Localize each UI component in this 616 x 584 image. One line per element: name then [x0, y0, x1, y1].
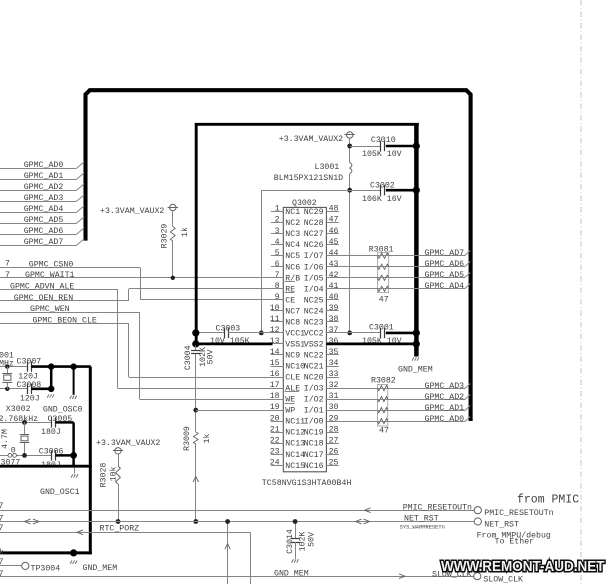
svg-text:47: 47 [379, 295, 389, 304]
svg-text:10: 10 [270, 304, 280, 313]
svg-text:26: 26 [329, 447, 339, 456]
svg-text:50V: 50V [308, 532, 317, 547]
svg-text:NC23: NC23 [304, 318, 324, 327]
svg-text:TC58NVG1S3HTA00B4H: TC58NVG1S3HTA00B4H [262, 479, 352, 488]
svg-text:R3081: R3081 [369, 245, 394, 254]
svg-text:21: 21 [270, 425, 280, 434]
svg-text:GPMC_AD4: GPMC_AD4 [24, 205, 64, 214]
svg-text:NC27: NC27 [304, 230, 324, 239]
svg-text:+3.3VAM_VAUX2: +3.3VAM_VAUX2 [279, 135, 343, 144]
svg-text:GPMC_AD4: GPMC_AD4 [425, 282, 465, 291]
svg-text:1k: 1k [202, 434, 212, 444]
svg-text:GPMC_AD1: GPMC_AD1 [24, 172, 64, 181]
svg-text:6: 6 [275, 260, 280, 269]
svg-text:C3014: C3014 [286, 529, 295, 554]
svg-text:GPMC_AD7: GPMC_AD7 [24, 238, 64, 247]
svg-text:GPMC_AD0: GPMC_AD0 [24, 161, 64, 170]
svg-text:NC26: NC26 [304, 241, 324, 250]
svg-text:GPMC_AD6: GPMC_AD6 [24, 227, 64, 236]
svg-text:GND_MEM: GND_MEM [274, 569, 309, 578]
svg-text:NC29: NC29 [304, 208, 324, 217]
svg-text:C3002: C3002 [370, 182, 395, 191]
svg-text:NC3: NC3 [285, 230, 300, 239]
svg-text:NC1: NC1 [285, 208, 300, 217]
svg-text:C3001: C3001 [369, 323, 394, 332]
svg-text:1: 1 [275, 205, 280, 214]
svg-text:To Ether: To Ether [495, 537, 535, 547]
svg-text:NC14: NC14 [285, 451, 305, 460]
svg-text:NET_RST: NET_RST [484, 521, 519, 530]
svg-text:C3006: C3006 [39, 448, 64, 457]
svg-text:2: 2 [275, 216, 280, 225]
svg-text:NC10: NC10 [285, 363, 305, 372]
svg-text:I/O7: I/O7 [304, 251, 324, 261]
svg-text:7: 7 [0, 502, 4, 511]
svg-text:180J: 180J [41, 428, 61, 437]
svg-text:+3.3VAM_VAUX2: +3.3VAM_VAUX2 [96, 439, 160, 448]
svg-text:CLE: CLE [285, 374, 300, 383]
svg-text:50V: 50V [206, 350, 215, 365]
svg-text:18: 18 [270, 392, 280, 401]
svg-text:NC6: NC6 [285, 263, 300, 272]
svg-text:NC7: NC7 [285, 307, 300, 316]
svg-text:102K: 102K [298, 532, 307, 552]
svg-text:7: 7 [5, 271, 10, 280]
svg-text:GND_OSC0: GND_OSC0 [43, 405, 83, 414]
svg-text:I/O3: I/O3 [304, 384, 324, 394]
svg-text:NC16: NC16 [304, 462, 324, 471]
svg-text:C3005: C3005 [48, 415, 73, 424]
svg-text:I/O5: I/O5 [304, 273, 324, 283]
svg-text:VCC2: VCC2 [304, 329, 324, 338]
svg-text:WWW.REMONT-AUD.NET: WWW.REMONT-AUD.NET [441, 559, 605, 575]
svg-text:GND_MEM: GND_MEM [83, 564, 118, 573]
svg-text:23: 23 [270, 447, 280, 456]
svg-text:105K 10V: 105K 10V [362, 150, 402, 159]
svg-text:NC20: NC20 [304, 374, 324, 383]
svg-text:VCC1: VCC1 [285, 329, 305, 338]
svg-text:34: 34 [329, 359, 339, 368]
svg-text:NC18: NC18 [304, 440, 324, 449]
svg-text:43: 43 [329, 260, 339, 269]
svg-text:X3002: X3002 [6, 405, 31, 414]
svg-text:R3082: R3082 [371, 376, 396, 385]
svg-text:GPMC_AD2: GPMC_AD2 [425, 393, 465, 402]
svg-text:NC28: NC28 [304, 219, 324, 228]
svg-text:10k: 10k [109, 467, 119, 482]
svg-text:TP3004: TP3004 [31, 564, 61, 573]
svg-text:NC2: NC2 [285, 219, 300, 228]
svg-text:46: 46 [329, 227, 339, 236]
svg-text:GPMC_AD5: GPMC_AD5 [24, 216, 64, 225]
svg-text:1k: 1k [180, 227, 190, 237]
svg-text:RTC_PORZ: RTC_PORZ [100, 524, 140, 533]
svg-text:GPMC_AD3: GPMC_AD3 [24, 194, 64, 203]
svg-text:47: 47 [329, 216, 339, 225]
svg-text:41: 41 [329, 282, 339, 291]
svg-text:NC24: NC24 [304, 307, 324, 316]
svg-text:NC5: NC5 [285, 252, 300, 261]
svg-text:120J: 120J [20, 395, 40, 404]
svg-text:48: 48 [329, 205, 339, 214]
svg-text:33: 33 [329, 370, 339, 379]
svg-text:22: 22 [270, 436, 280, 445]
svg-text:44: 44 [329, 249, 339, 258]
svg-text:CE: CE [285, 296, 295, 305]
svg-text:PMIC_RESETOUTn: PMIC_RESETOUTn [403, 503, 472, 512]
svg-text:GPMC_AD1: GPMC_AD1 [425, 404, 465, 413]
svg-text:NC21: NC21 [304, 363, 324, 372]
svg-text:GPMC_CSN0: GPMC_CSN0 [29, 261, 74, 270]
svg-text:PMIC_RESETOUTn: PMIC_RESETOUTn [484, 509, 553, 518]
svg-text:39: 39 [329, 304, 339, 313]
svg-text:C3003: C3003 [216, 325, 241, 334]
svg-text:GPMC_AD0: GPMC_AD0 [425, 415, 465, 424]
svg-text:NC19: NC19 [304, 429, 324, 438]
svg-text:4.7M: 4.7M [1, 429, 10, 449]
svg-text:106K 16V: 106K 16V [362, 195, 402, 204]
svg-text:5: 5 [275, 249, 280, 258]
svg-text:MHz: MHz [0, 359, 14, 368]
svg-text:GPMC_WAIT1: GPMC_WAIT1 [25, 271, 75, 280]
svg-text:Q3002: Q3002 [292, 199, 317, 208]
svg-text:7: 7 [0, 514, 4, 523]
svg-text:47: 47 [379, 426, 389, 435]
svg-text:15: 15 [270, 359, 280, 368]
svg-text:16: 16 [270, 370, 280, 379]
svg-text:R3028: R3028 [100, 463, 109, 488]
svg-text:+3.3VAM_VAUX2: +3.3VAM_VAUX2 [100, 207, 164, 216]
svg-text:35: 35 [329, 348, 339, 357]
svg-text:11: 11 [270, 315, 280, 324]
svg-text:C3007: C3007 [17, 358, 42, 367]
svg-text:GPMC_WEN: GPMC_WEN [30, 305, 70, 314]
svg-text:SYS_WARMRESETn: SYS_WARMRESETn [400, 524, 445, 530]
svg-text:28: 28 [329, 425, 339, 434]
svg-text:I/O4: I/O4 [304, 284, 324, 294]
svg-text:NC11: NC11 [285, 418, 305, 427]
svg-text:7: 7 [0, 524, 4, 533]
svg-text:C3004: C3004 [184, 345, 193, 370]
svg-text:0: 0 [11, 447, 16, 456]
svg-text:NC9: NC9 [285, 351, 300, 360]
svg-text:17: 17 [270, 381, 280, 390]
svg-text:7: 7 [0, 558, 4, 567]
svg-text:C3010: C3010 [371, 136, 396, 145]
svg-text:37: 37 [329, 326, 339, 335]
svg-text:VSS1: VSS1 [285, 340, 305, 349]
svg-text:NC22: NC22 [304, 351, 324, 360]
svg-text:GPMC_OEN_REN: GPMC_OEN_REN [14, 294, 73, 303]
svg-text:R3009: R3009 [183, 426, 192, 451]
svg-text:NC13: NC13 [285, 440, 305, 449]
svg-text:GPMC_BEON_CLE: GPMC_BEON_CLE [33, 317, 97, 326]
svg-text:12: 12 [270, 326, 280, 335]
svg-text:C3008: C3008 [17, 381, 42, 390]
svg-text:42: 42 [329, 271, 339, 280]
svg-text:GND_OSC1: GND_OSC1 [40, 488, 80, 497]
svg-text:SLOW_CLK: SLOW_CLK [483, 575, 523, 584]
svg-text:25: 25 [329, 458, 339, 467]
svg-text:NC15: NC15 [285, 462, 305, 471]
svg-text:NET_RST: NET_RST [404, 515, 439, 524]
svg-text:GPMC_AD5: GPMC_AD5 [425, 271, 465, 280]
svg-text:38: 38 [329, 315, 339, 324]
svg-text:4: 4 [275, 238, 280, 247]
svg-text:GPMC_AD7: GPMC_AD7 [425, 249, 465, 258]
svg-text:27: 27 [329, 436, 339, 445]
svg-text:9: 9 [275, 293, 280, 302]
svg-text:GPMC_AD6: GPMC_AD6 [425, 260, 465, 269]
svg-text:20: 20 [270, 414, 280, 423]
svg-text:NC17: NC17 [304, 451, 324, 460]
svg-text:I/O6: I/O6 [304, 262, 324, 272]
svg-text:45: 45 [329, 238, 339, 247]
svg-text:7: 7 [0, 570, 4, 579]
svg-text:24: 24 [270, 458, 280, 467]
svg-text:3: 3 [275, 227, 280, 236]
svg-text:I/O2: I/O2 [304, 395, 324, 405]
svg-text:BLM15PX121SN1D: BLM15PX121SN1D [274, 174, 343, 183]
svg-text:GPMC_ADVN_ALE: GPMC_ADVN_ALE [10, 283, 74, 292]
svg-text:14: 14 [270, 348, 280, 357]
svg-text:R3029: R3029 [161, 224, 170, 249]
svg-text:8: 8 [275, 282, 280, 291]
svg-text:I/O1: I/O1 [304, 406, 324, 416]
svg-text:L3001: L3001 [315, 163, 340, 172]
svg-text:GPMC_AD3: GPMC_AD3 [425, 382, 465, 391]
svg-text:ALE: ALE [285, 385, 300, 394]
svg-text:k: k [0, 548, 4, 558]
svg-text:NC8: NC8 [285, 318, 300, 327]
svg-text:VSS2: VSS2 [304, 340, 324, 349]
svg-text:GND_MEM: GND_MEM [398, 366, 433, 375]
svg-text:NC25: NC25 [304, 296, 324, 305]
svg-text:40: 40 [329, 293, 339, 302]
svg-text:RE: RE [285, 285, 295, 294]
svg-text:WP: WP [285, 407, 295, 416]
svg-text:from PMIC: from PMIC [517, 494, 579, 507]
svg-text:NC4: NC4 [285, 241, 300, 250]
svg-text:I/O0: I/O0 [304, 417, 324, 427]
svg-text:GPMC_AD2: GPMC_AD2 [24, 183, 64, 192]
svg-text:7: 7 [275, 271, 280, 280]
svg-text:NC12: NC12 [285, 429, 305, 438]
